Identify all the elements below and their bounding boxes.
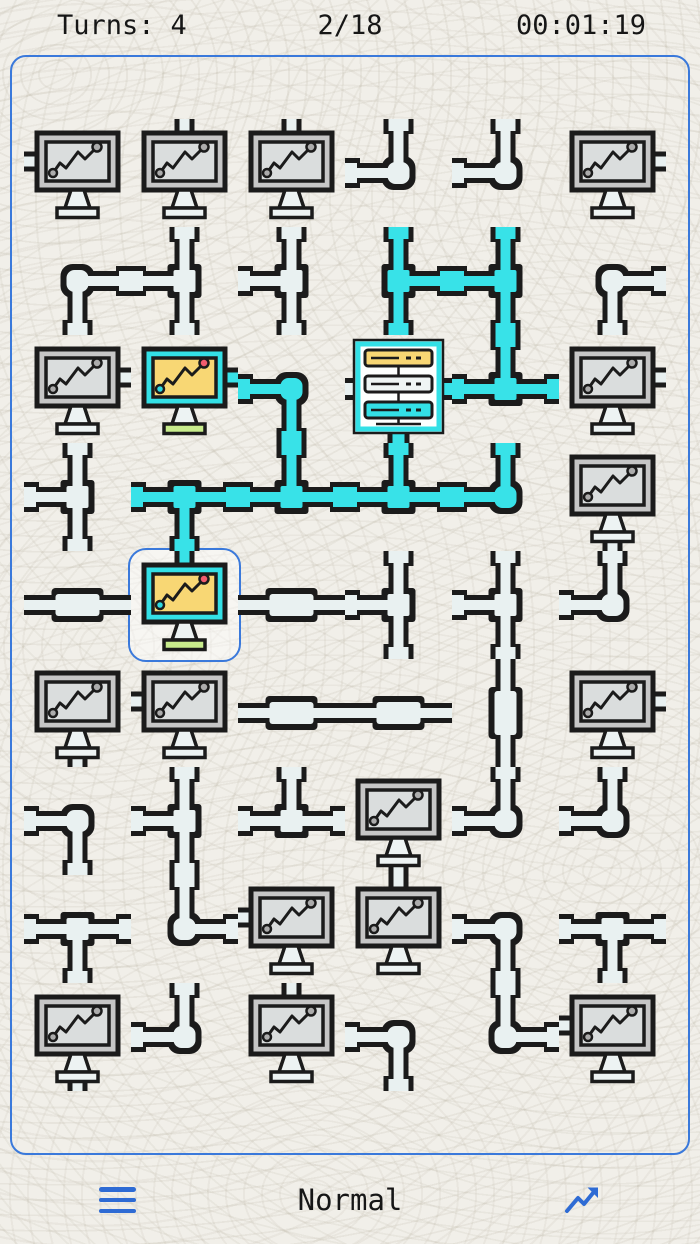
tile-r4c5-elbow-wn-connected[interactable]	[452, 443, 559, 551]
tile-r8c6-tee-wes[interactable]	[559, 875, 666, 983]
tile-r5c2-computer-n-connected[interactable]	[131, 551, 238, 659]
tile-r9c4-elbow-ws[interactable]	[345, 983, 452, 1091]
tile-r8c3-computer-w[interactable]	[238, 875, 345, 983]
tile-r4c2-tee-wes-connected[interactable]	[131, 443, 238, 551]
trend-up-icon	[564, 1185, 602, 1215]
tile-r5c4-tee-nsw[interactable]	[345, 551, 452, 659]
tile-r1c5-elbow-nw[interactable]	[452, 119, 559, 227]
tile-r4c1-tee-nsw[interactable]	[24, 443, 131, 551]
tile-r4c6-computer-s[interactable]	[559, 443, 666, 551]
tile-r3c5-tee-nwe-connected[interactable]	[452, 335, 559, 443]
tile-r9c1-computer-s[interactable]	[24, 983, 131, 1091]
tile-r3c6-computer-e[interactable]	[559, 335, 666, 443]
tile-r2c5-tee-nsw-connected[interactable]	[452, 227, 559, 335]
tile-r3c1-computer-e[interactable]	[24, 335, 131, 443]
tile-r5c6-elbow-nw[interactable]	[559, 551, 666, 659]
tile-r8c4-computer-n[interactable]	[345, 875, 452, 983]
tile-r8c5-elbow-ws[interactable]	[452, 875, 559, 983]
tile-r6c3-straight-we[interactable]	[238, 659, 345, 767]
tile-r8c2-elbow-ne[interactable]	[131, 875, 238, 983]
tile-r7c4-computer-s[interactable]	[345, 767, 452, 875]
tile-r9c3-computer-n[interactable]	[238, 983, 345, 1091]
tile-r9c2-elbow-nw[interactable]	[131, 983, 238, 1091]
tile-r5c1-straight-we[interactable]	[24, 551, 131, 659]
tile-r2c4-tee-nse-connected[interactable]	[345, 227, 452, 335]
tile-r4c3-tee-wen-connected[interactable]	[238, 443, 345, 551]
tile-r7c1-elbow-ws[interactable]	[24, 767, 131, 875]
tile-r7c6-elbow-nw[interactable]	[559, 767, 666, 875]
tile-r9c5-elbow-ne[interactable]	[452, 983, 559, 1091]
tile-r2c3-tee-nsw[interactable]	[238, 227, 345, 335]
status-bar: Turns:4 2/18 00:01:19	[0, 0, 700, 55]
tile-r6c6-computer-e[interactable]	[559, 659, 666, 767]
tile-r9c6-computer-w[interactable]	[559, 983, 666, 1091]
tile-r1c2-computer-n[interactable]	[131, 119, 238, 227]
tile-r2c6-elbow-es[interactable]	[559, 227, 666, 335]
tile-r2c2-tee-nsw[interactable]	[131, 227, 238, 335]
tile-r5c5-tee-nsw[interactable]	[452, 551, 559, 659]
tile-r7c3-tee-wen[interactable]	[238, 767, 345, 875]
tile-r1c3-computer-n[interactable]	[238, 119, 345, 227]
game-board	[10, 55, 690, 1155]
tile-r6c5-straight-ns[interactable]	[452, 659, 559, 767]
tile-r5c3-straight-we[interactable]	[238, 551, 345, 659]
tile-r8c1-tee-wes[interactable]	[24, 875, 131, 983]
tile-r3c3-elbow-ws-connected[interactable]	[238, 335, 345, 443]
tile-r1c4-elbow-nw[interactable]	[345, 119, 452, 227]
tile-r7c5-elbow-nw[interactable]	[452, 767, 559, 875]
tile-r3c4-server[interactable]	[345, 335, 452, 443]
tile-r1c6-computer-e[interactable]	[559, 119, 666, 227]
board-grid	[24, 119, 666, 1091]
timer: 00:01:19	[516, 10, 646, 41]
tile-r6c1-computer-s[interactable]	[24, 659, 131, 767]
tile-r1c1-computer-w[interactable]	[24, 119, 131, 227]
bottom-bar: Normal	[0, 1155, 700, 1244]
stats-button[interactable]	[564, 1185, 602, 1215]
tile-r7c2-tee-nsw[interactable]	[131, 767, 238, 875]
tile-r3c2-computer-e-connected[interactable]	[131, 335, 238, 443]
tile-r2c1-elbow-es[interactable]	[24, 227, 131, 335]
tile-r4c4-tee-wen-connected[interactable]	[345, 443, 452, 551]
tile-r6c4-straight-we[interactable]	[345, 659, 452, 767]
tile-r6c2-computer-w[interactable]	[131, 659, 238, 767]
